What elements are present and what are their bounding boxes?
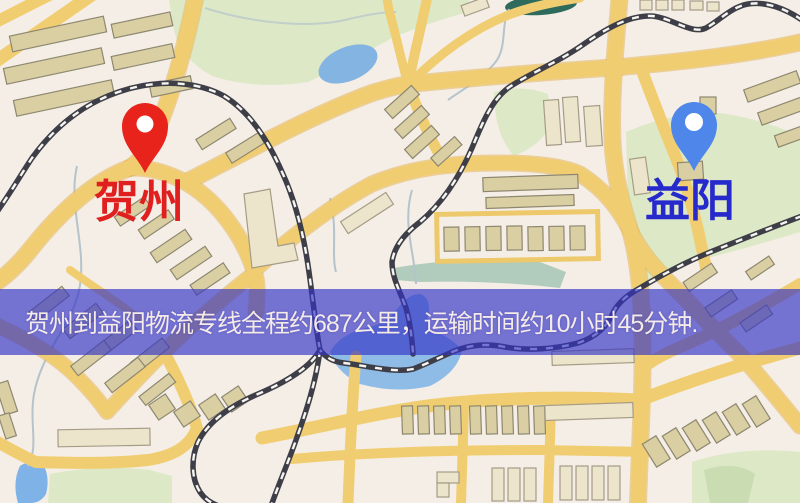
logistics-map: 贺州 益阳 贺州到益阳物流专线全程约687公里，运输时间约10小时45分钟. (0, 0, 800, 503)
origin-label: 贺州 (94, 176, 184, 227)
destination-label: 益阳 (645, 175, 735, 226)
map-canvas[interactable]: 贺州 益阳 (0, 0, 800, 503)
destination-pin-hole (685, 113, 703, 131)
route-info-banner: 贺州到益阳物流专线全程约687公里，运输时间约10小时45分钟. (0, 289, 800, 355)
route-info-text: 贺州到益阳物流专线全程约687公里，运输时间约10小时45分钟. (0, 304, 697, 340)
origin-pin-hole (137, 116, 154, 133)
